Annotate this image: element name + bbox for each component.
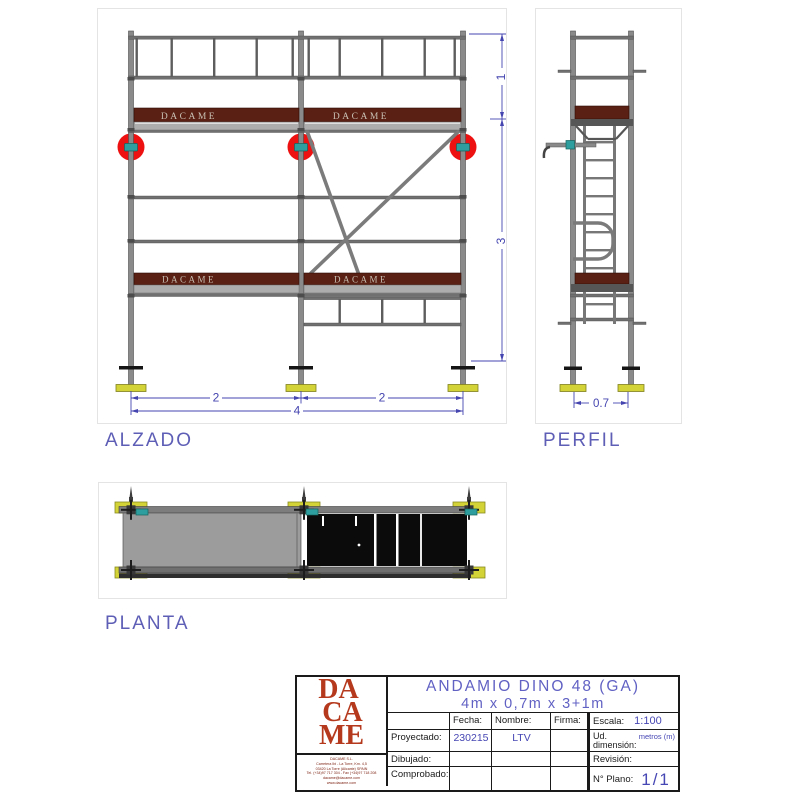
revision-cell: Revisión: <box>588 752 678 767</box>
comprobado-label: Comprobado: <box>388 767 450 790</box>
toeboard-brand-text: DACAME <box>333 112 389 122</box>
perfil-view: 0.7 <box>535 8 682 424</box>
proyectado-label: Proyectado: <box>388 730 450 752</box>
dibujado-label: Dibujado: <box>388 752 450 767</box>
toeboard-brand-text: DACAME <box>334 275 388 285</box>
planta-view <box>98 482 507 599</box>
diagonal-braces <box>307 131 459 275</box>
planta-drawing <box>99 483 506 598</box>
firma-header: Firma: <box>551 713 588 730</box>
plano-label: N° Plano: <box>593 774 633 785</box>
comprobado-nombre-cell <box>492 767 551 790</box>
plano-cell: N° Plano: 1/1 <box>588 767 678 790</box>
dim-top-height: 1 <box>494 73 506 80</box>
alzado-drawing: DACAME DACAME DACAME DACAME <box>98 9 506 423</box>
title-block-table: Fecha: Nombre: Firma: Escala:1:100 Proye… <box>388 713 678 790</box>
escala-value: 1:100 <box>634 715 662 727</box>
hatch-guard-loop <box>573 223 613 259</box>
plano-value: 1/1 <box>641 770 671 790</box>
platform-hatch <box>307 514 467 566</box>
dim-total-width: 4 <box>294 404 301 418</box>
front-board <box>119 574 471 579</box>
toe-boards-level2: DACAME DACAME <box>134 273 461 293</box>
view-label-alzado: ALZADO <box>105 430 193 452</box>
company-fine-print: DACAME S.L. Carretera Ibi - La Torre, Km… <box>297 753 386 786</box>
view-label-planta: PLANTA <box>105 613 190 635</box>
anchor-clamp <box>566 141 575 150</box>
dibujado-nombre-cell <box>492 752 551 767</box>
proyectado-nombre-value: LTV <box>492 730 551 752</box>
dibujado-fecha-cell <box>450 752 492 767</box>
perfil-drawing: 0.7 <box>536 9 681 423</box>
ud-dimension-cell: Ud. dimensión: metros (m) <box>588 730 678 752</box>
drawing-title: ANDAMIO DINO 48 (GA) 4m x 0,7m x 3+1m <box>388 677 678 713</box>
comprobado-firma-cell <box>551 767 588 790</box>
alzado-view: DACAME DACAME DACAME DACAME <box>97 8 507 424</box>
fecha-header: Fecha: <box>450 713 492 730</box>
toeboard-brand-text: DACAME <box>161 112 217 122</box>
ud-label-2: dimensión: <box>593 741 676 750</box>
dibujado-firma-cell <box>551 752 588 767</box>
base-jacks <box>116 366 478 392</box>
dim-main-height: 3 <box>494 237 506 244</box>
view-label-perfil: PERFIL <box>543 430 622 452</box>
escala-cell: Escala:1:100 <box>588 713 678 730</box>
ud-value: metros (m) <box>639 732 675 741</box>
toeboard-brand-text: DACAME <box>162 275 216 285</box>
dim-bay-right: 2 <box>379 391 386 405</box>
dacame-logo: DA CA ME <box>297 677 386 747</box>
platform-steel <box>123 513 301 567</box>
proyectado-firma-cell <box>551 730 588 752</box>
title-block: DA CA ME DACAME S.L. Carretera Ibi - La … <box>295 675 680 792</box>
toe-boards <box>571 106 633 292</box>
dim-depth: 0.7 <box>593 398 609 410</box>
nombre-header: Nombre: <box>492 713 551 730</box>
comprobado-fecha-cell <box>450 767 492 790</box>
empty-cell <box>388 713 450 730</box>
dim-bay-left: 2 <box>213 391 220 405</box>
logo-cell: DA CA ME DACAME S.L. Carretera Ibi - La … <box>297 677 388 786</box>
project-subtitle: 4m x 0,7m x 3+1m <box>388 696 678 712</box>
toe-boards-level1: DACAME DACAME <box>134 108 461 130</box>
escala-label: Escala: <box>593 716 624 727</box>
logo-line: ME <box>297 724 386 747</box>
drawing-sheet: DACAME DACAME DACAME DACAME <box>0 0 800 800</box>
anchor-clamps <box>125 144 470 152</box>
alzado-dimensions: 2 2 4 1 3 <box>131 34 506 418</box>
wall-anchor <box>544 141 596 159</box>
project-title: ANDAMIO DINO 48 (GA) <box>388 678 678 696</box>
proyectado-fecha-value: 230215 <box>450 730 492 752</box>
perfil-dimensions: 0.7 <box>574 392 628 410</box>
standards <box>129 31 466 386</box>
standards <box>571 31 634 386</box>
